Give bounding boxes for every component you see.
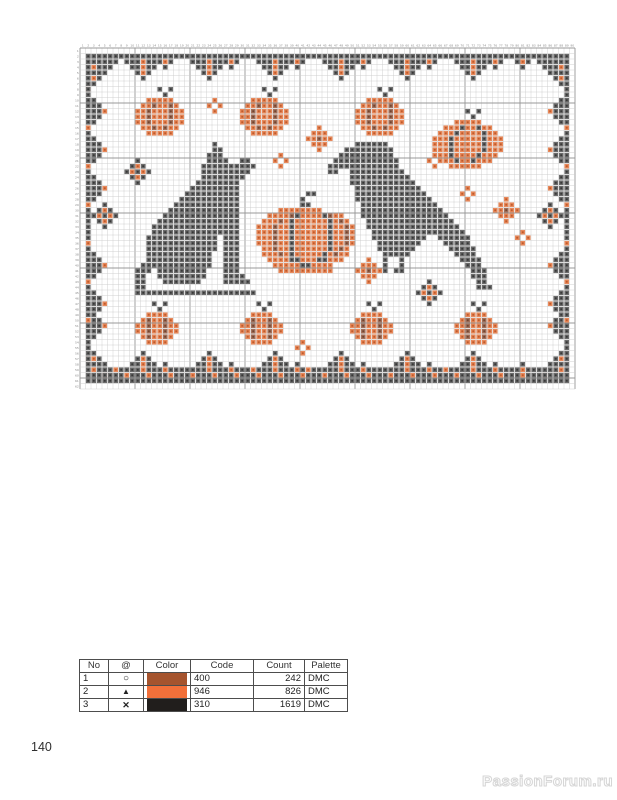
legend-header-count: Count (254, 660, 305, 673)
legend-header-code: Code (191, 660, 254, 673)
cross-symbol-icon: ✕ (109, 699, 144, 712)
color-swatch (147, 673, 187, 685)
legend-row: 2 ▲ 946 826 DMC (80, 686, 348, 699)
legend-no: 2 (80, 686, 109, 699)
legend-palette: DMC (305, 686, 348, 699)
legend-row: 1 ○ 400 242 DMC (80, 673, 348, 686)
legend-code: 946 (191, 686, 254, 699)
legend-header-no: No (80, 660, 109, 673)
thread-legend-table: No @ Color Code Count Palette 1 ○ 400 24… (79, 659, 348, 712)
legend-code: 400 (191, 673, 254, 686)
page-number: 140 (31, 740, 52, 754)
legend-header-color: Color (144, 660, 191, 673)
legend-no: 1 (80, 673, 109, 686)
watermark-text: PassionForum.ru (482, 773, 613, 790)
cross-stitch-chart-canvas (70, 40, 577, 391)
legend-count: 242 (254, 673, 305, 686)
circle-symbol-icon: ○ (109, 673, 144, 686)
scanned-pattern-page: No @ Color Code Count Palette 1 ○ 400 24… (0, 0, 617, 800)
triangle-symbol-icon: ▲ (109, 686, 144, 699)
legend-header-row: No @ Color Code Count Palette (80, 660, 348, 673)
legend-header-palette: Palette (305, 660, 348, 673)
legend-code: 310 (191, 699, 254, 712)
legend-count: 1619 (254, 699, 305, 712)
legend-no: 3 (80, 699, 109, 712)
legend-palette: DMC (305, 699, 348, 712)
legend-header-symbol: @ (109, 660, 144, 673)
legend-row: 3 ✕ 310 1619 DMC (80, 699, 348, 712)
color-swatch (147, 686, 187, 698)
color-swatch (147, 699, 187, 711)
legend-palette: DMC (305, 673, 348, 686)
legend-count: 826 (254, 686, 305, 699)
